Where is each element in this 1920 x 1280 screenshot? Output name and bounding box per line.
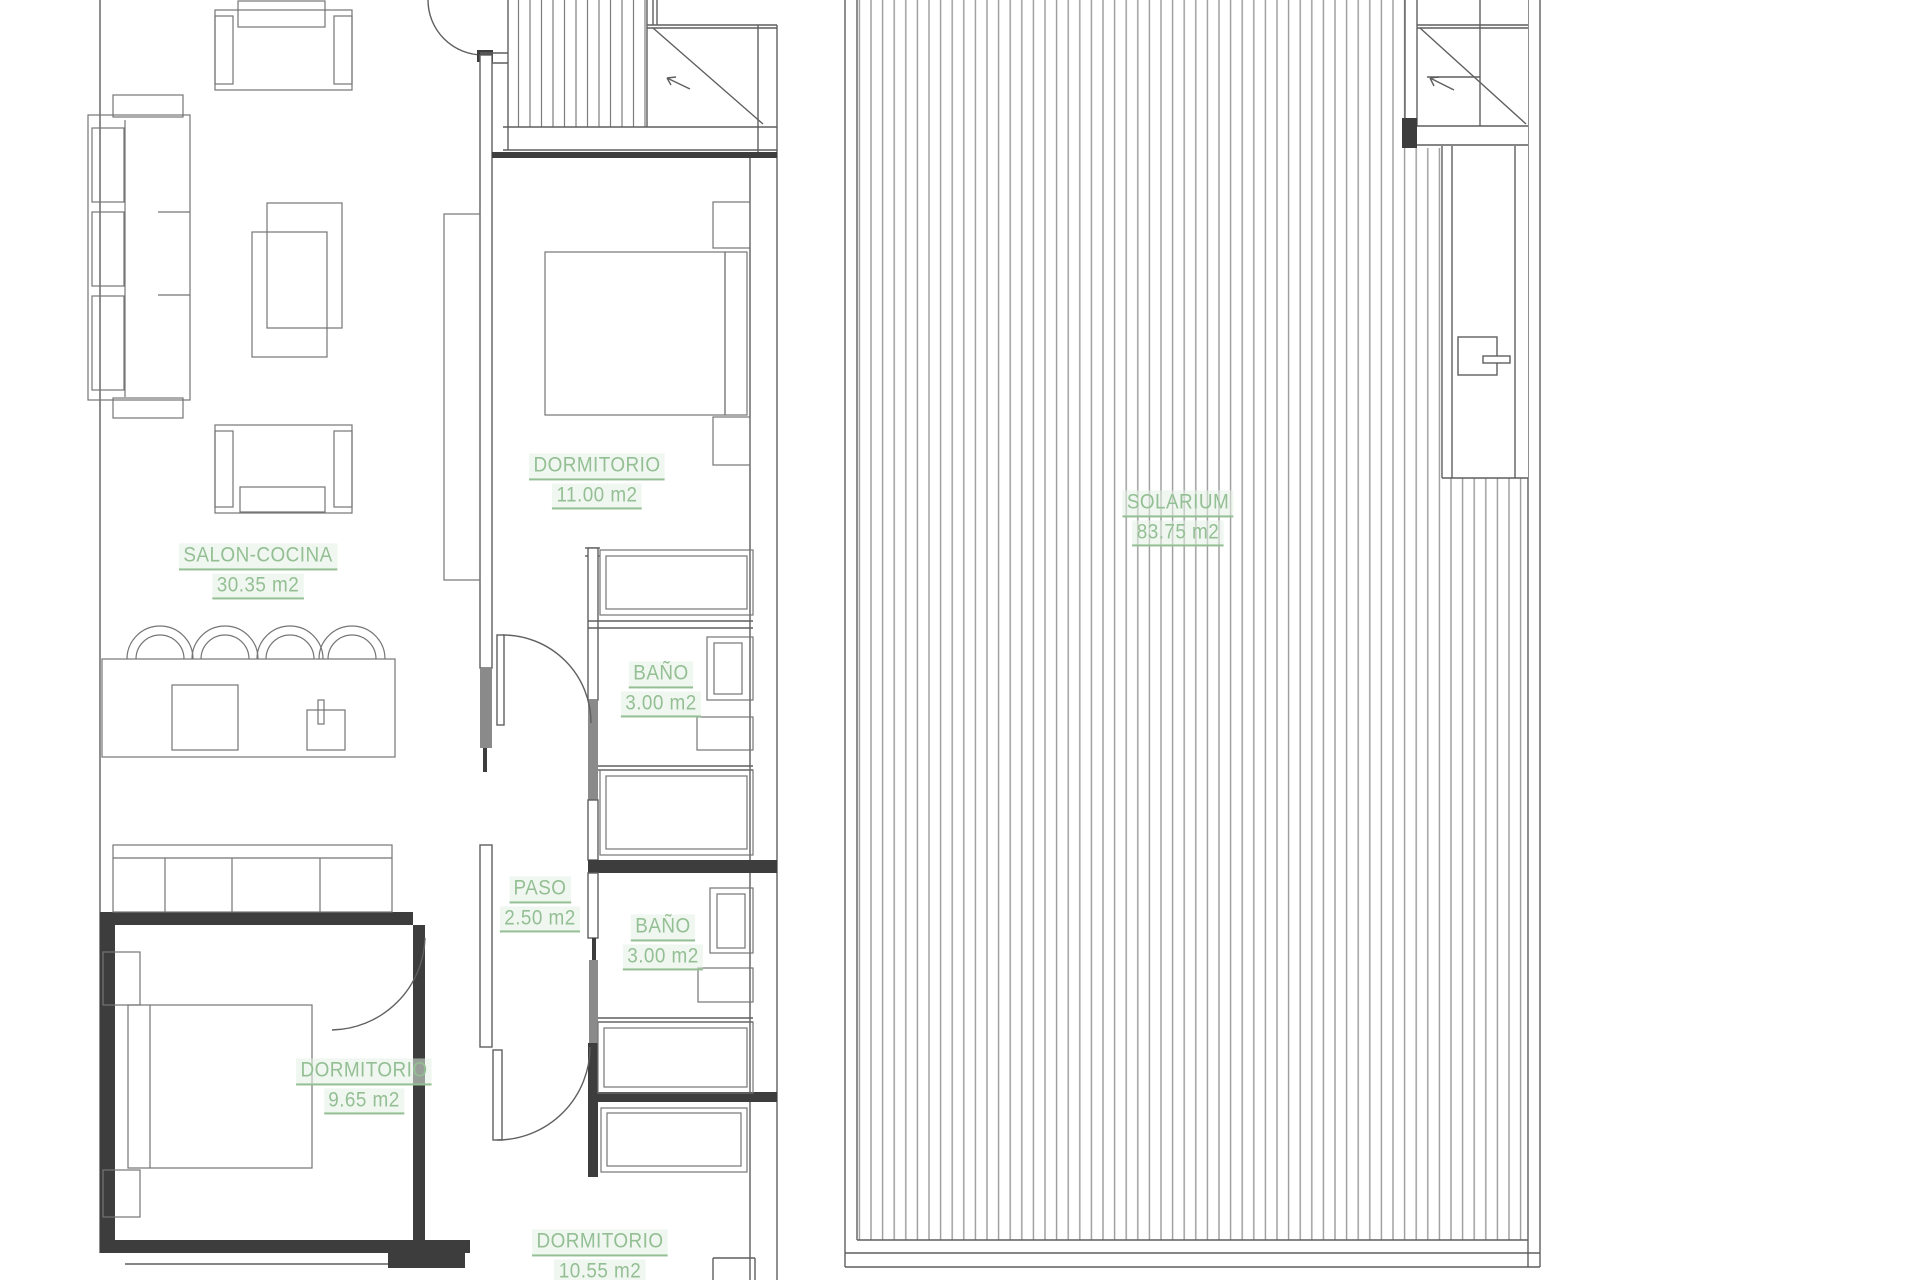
room-area-label: 30.35 m2 <box>212 573 303 600</box>
room-name-label: SOLARIUM <box>1122 490 1233 517</box>
room-area-label: 3.00 m2 <box>621 691 701 718</box>
room-labels-layer: SALON-COCINA 30.35 m2 DORMITORIO 11.00 m… <box>0 0 1920 1280</box>
room-area-label: 3.00 m2 <box>623 944 703 971</box>
room-area-label: 11.00 m2 <box>552 483 642 510</box>
room-label-paso: PASO 2.50 m2 <box>500 873 580 932</box>
room-name-label: DORMITORIO <box>529 453 665 480</box>
room-label-bano-2: BAÑO 3.00 m2 <box>623 911 703 970</box>
room-area-label: 2.50 m2 <box>500 906 580 933</box>
room-name-label: BAÑO <box>629 661 693 688</box>
room-label-solarium: SOLARIUM 83.75 m2 <box>1122 487 1233 546</box>
room-label-dormitorio-2: DORMITORIO 9.65 m2 <box>296 1055 432 1114</box>
room-area-label: 10.55 m2 <box>554 1259 645 1280</box>
room-area-label: 9.65 m2 <box>324 1088 404 1115</box>
room-name-label: PASO <box>509 876 571 903</box>
room-area-label: 83.75 m2 <box>1132 520 1223 547</box>
room-name-label: BAÑO <box>631 914 695 941</box>
room-name-label: DORMITORIO <box>296 1058 432 1085</box>
room-label-salon-cocina: SALON-COCINA 30.35 m2 <box>179 540 337 599</box>
room-name-label: SALON-COCINA <box>179 543 337 570</box>
room-label-dormitorio-1: DORMITORIO 11.00 m2 <box>529 450 665 509</box>
floor-plan-page: .ln{fill:none;stroke:#5f5f5f;stroke-widt… <box>0 0 1920 1280</box>
room-name-label: DORMITORIO <box>532 1229 668 1256</box>
room-label-dormitorio-3: DORMITORIO 10.55 m2 <box>532 1226 668 1280</box>
room-label-bano-1: BAÑO 3.00 m2 <box>621 658 701 717</box>
